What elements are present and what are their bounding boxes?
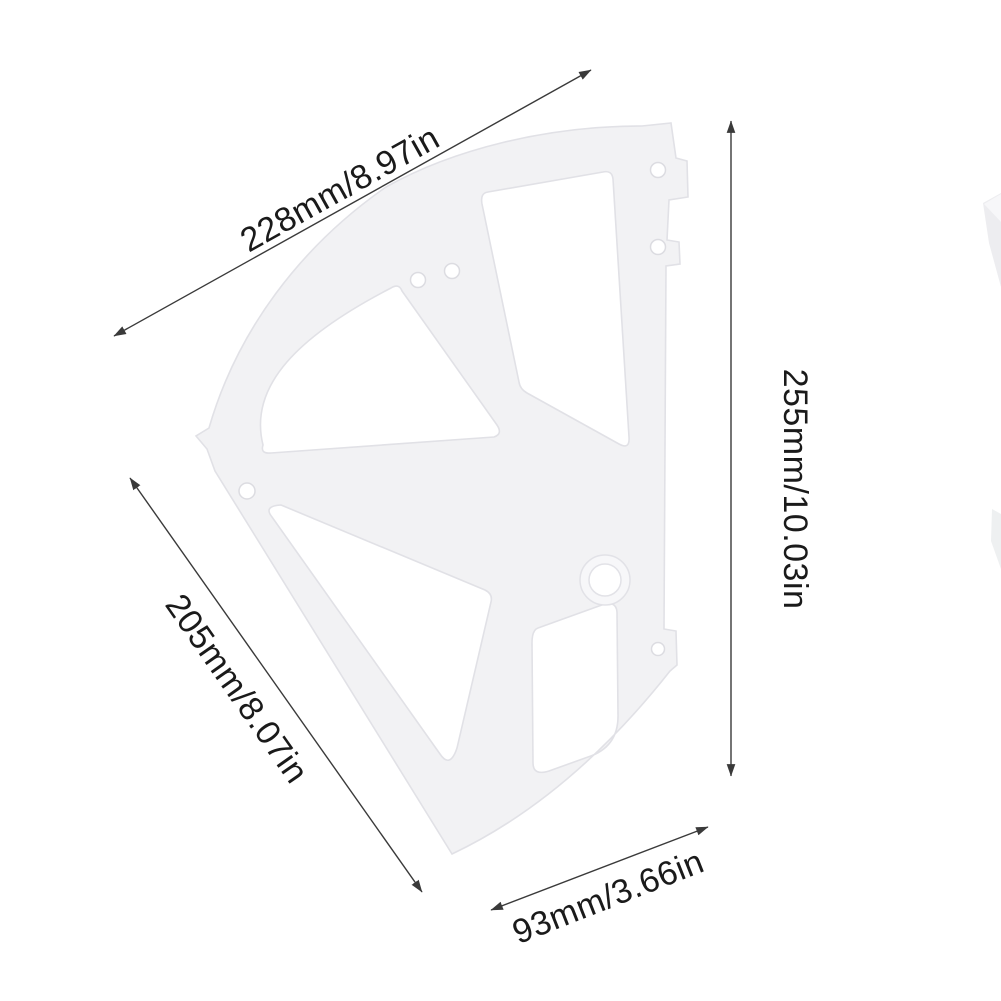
- watermark-fragment-lower: [991, 509, 1001, 569]
- mounting-hole-top-right-upper: [651, 163, 666, 178]
- mounting-hole-bottom-right: [652, 643, 665, 656]
- hub-hole: [589, 564, 621, 596]
- diagram-canvas: 228mm/8.97in 255mm/10.03in 205mm/8.07in …: [0, 0, 1001, 1001]
- dimension-right: 255mm/10.03in: [731, 121, 814, 776]
- mounting-hole-spoke-right: [445, 264, 460, 279]
- mounting-hole-left: [239, 483, 255, 499]
- dimension-label-bottom: 93mm/3.66in: [507, 842, 709, 951]
- dimension-bottom: 93mm/3.66in: [491, 827, 709, 952]
- watermark-fragments: [983, 193, 1001, 569]
- mounting-hole-top-right-lower: [651, 240, 666, 255]
- product-dimension-diagram: 228mm/8.97in 255mm/10.03in 205mm/8.07in …: [0, 0, 1001, 1001]
- mounting-hole-spoke-left: [411, 273, 426, 288]
- dimension-label-left: 205mm/8.07in: [158, 587, 316, 790]
- dimension-label-right: 255mm/10.03in: [776, 369, 814, 610]
